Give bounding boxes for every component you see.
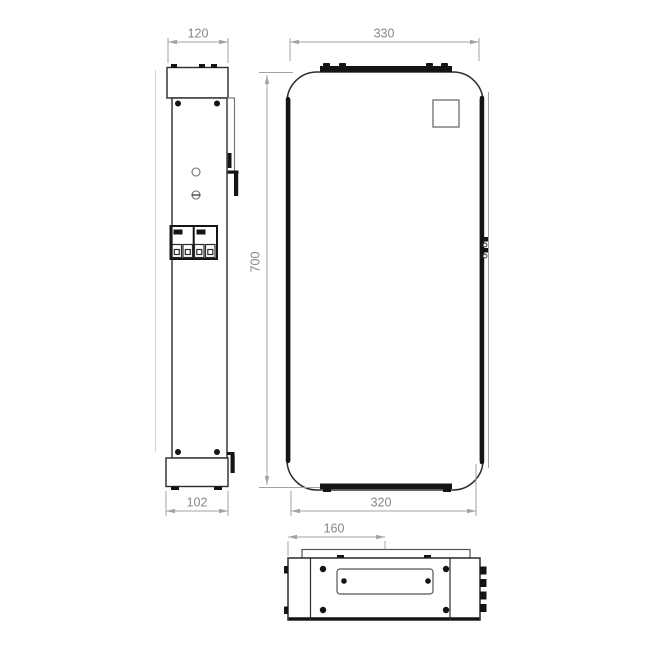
- dimension-front-top-width: 330: [290, 27, 479, 62]
- bottom-view: 160: [284, 522, 487, 621]
- dimension-side-top-width: 120: [168, 27, 228, 64]
- dimension-label: 320: [371, 496, 392, 510]
- side-base-box: [166, 458, 228, 487]
- dimension-label: 160: [324, 522, 345, 536]
- front-view: 330 700 320: [249, 27, 489, 517]
- dimension-label: 330: [374, 27, 395, 41]
- side-view: 120 102: [156, 27, 239, 517]
- logo-plate: [433, 100, 459, 127]
- right-edge-trim: [480, 96, 485, 465]
- breaker-toggle: [197, 230, 206, 235]
- breaker-toggle: [174, 230, 183, 235]
- dimension-label: 102: [187, 496, 208, 510]
- technical-drawing-page: 120 102: [0, 0, 650, 650]
- dimension-side-base-width: 102: [166, 491, 228, 516]
- three-view-drawing: 120 102: [0, 0, 650, 650]
- top-mounting-bar: [320, 63, 452, 72]
- right-connector-tabs: [480, 567, 487, 613]
- side-column-body: [172, 98, 227, 458]
- cabinet-body: [287, 72, 483, 490]
- dimension-label: 700: [249, 252, 263, 273]
- wall-bracket-top: [228, 98, 239, 196]
- left-edge-trim: [286, 97, 291, 463]
- side-top-cap: [167, 68, 228, 99]
- indicator-hole: [192, 168, 200, 176]
- flathead-screw: [192, 191, 201, 199]
- dimension-label: 120: [188, 27, 209, 41]
- cable-access-slot: [337, 569, 433, 594]
